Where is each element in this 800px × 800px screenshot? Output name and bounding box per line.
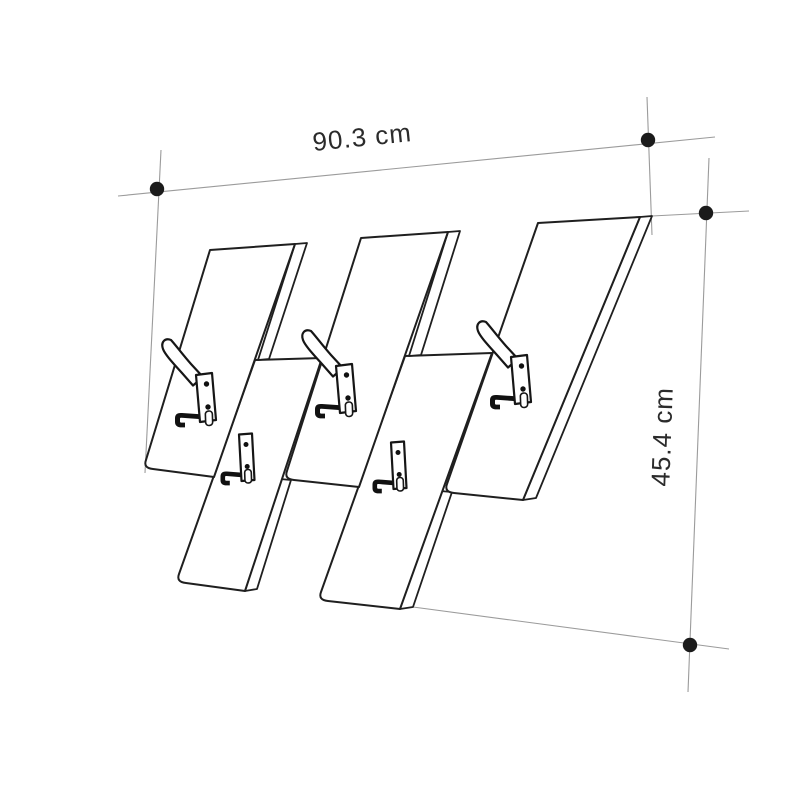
height-dimension-line bbox=[688, 158, 709, 692]
dimension-dot-top-right bbox=[641, 133, 655, 147]
dimension-dot-right-top bbox=[699, 206, 713, 220]
dimension-dot-top-left bbox=[150, 182, 164, 196]
width-dimension-line bbox=[118, 137, 715, 196]
dimension-dot-right-bottom bbox=[683, 638, 697, 652]
coat-rack-drawing bbox=[145, 216, 652, 609]
width-dimension-label: 90.3 cm bbox=[311, 117, 413, 157]
width-extension-line-right bbox=[647, 97, 652, 235]
dimension-diagram-canvas: 90.3 cm 45.4 cm bbox=[0, 0, 800, 800]
height-extension-line-bottom bbox=[413, 607, 729, 649]
coat-rack-dimension-diagram: 90.3 cm 45.4 cm bbox=[0, 0, 800, 800]
height-dimension-label: 45.4 cm bbox=[645, 386, 678, 486]
